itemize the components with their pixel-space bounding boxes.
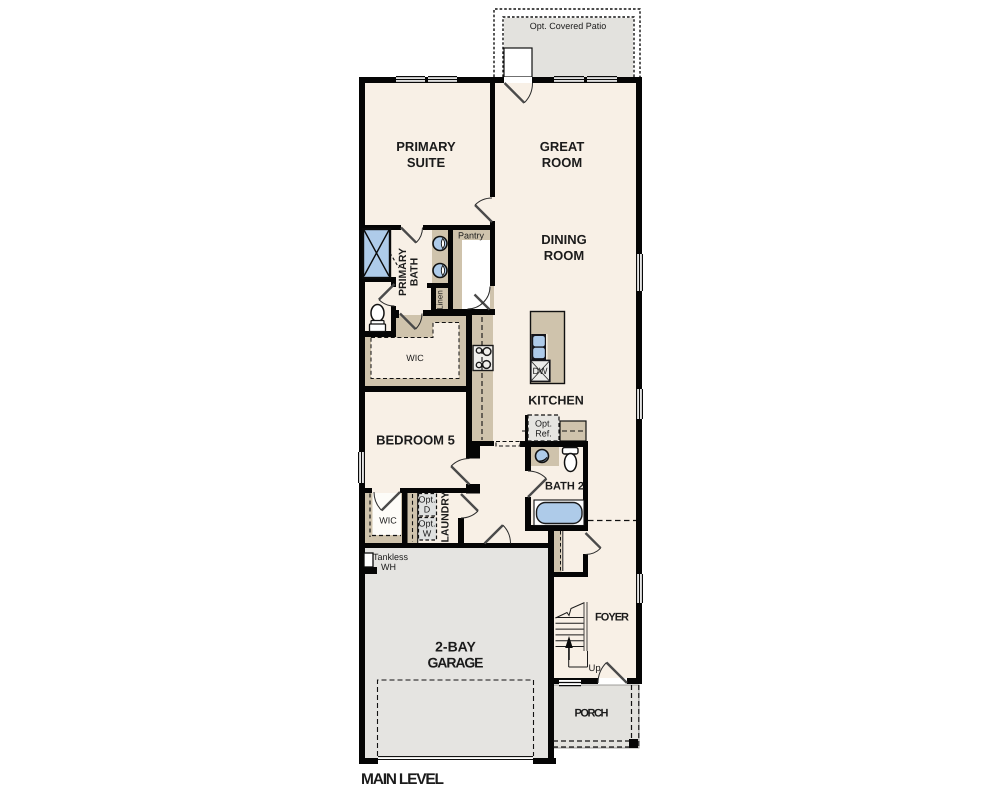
svg-text:BATH: BATH	[409, 258, 421, 286]
svg-text:DW: DW	[533, 366, 548, 376]
svg-text:DINING: DINING	[541, 232, 587, 247]
svg-text:FOYER: FOYER	[595, 612, 629, 624]
svg-text:Opt.: Opt.	[418, 495, 435, 505]
svg-text:Tankless: Tankless	[373, 552, 409, 562]
svg-text:BATH 2: BATH 2	[545, 481, 584, 493]
svg-text:WIC: WIC	[406, 353, 424, 363]
svg-text:SUITE: SUITE	[407, 155, 446, 170]
svg-text:KITCHEN: KITCHEN	[528, 394, 584, 408]
svg-text:Opt. Covered Patio: Opt. Covered Patio	[530, 21, 607, 31]
svg-text:MAIN LEVEL: MAIN LEVEL	[361, 771, 444, 788]
svg-text:WH: WH	[381, 562, 396, 572]
svg-text:GREAT: GREAT	[540, 139, 585, 154]
svg-text:Ref.: Ref.	[535, 429, 552, 439]
svg-text:Linen: Linen	[436, 290, 445, 310]
svg-text:ROOM: ROOM	[544, 248, 584, 263]
svg-text:Opt.: Opt.	[418, 519, 435, 529]
svg-text:PRIMARY: PRIMARY	[396, 139, 456, 154]
svg-text:GARAGE: GARAGE	[428, 655, 484, 671]
svg-text:Pantry: Pantry	[458, 231, 485, 241]
svg-text:BEDROOM 5: BEDROOM 5	[376, 433, 455, 448]
svg-text:Up: Up	[589, 663, 601, 674]
svg-text:2-BAY: 2-BAY	[435, 639, 476, 655]
svg-text:PORCH: PORCH	[575, 708, 609, 720]
svg-text:ROOM: ROOM	[542, 155, 582, 170]
svg-text:WIC: WIC	[379, 516, 397, 526]
svg-text:W: W	[423, 529, 432, 539]
svg-text:LAUNDRY: LAUNDRY	[440, 492, 452, 543]
svg-text:PRIMARY: PRIMARY	[397, 248, 409, 296]
svg-text:Opt.: Opt.	[535, 419, 552, 429]
svg-text:D: D	[424, 505, 431, 515]
